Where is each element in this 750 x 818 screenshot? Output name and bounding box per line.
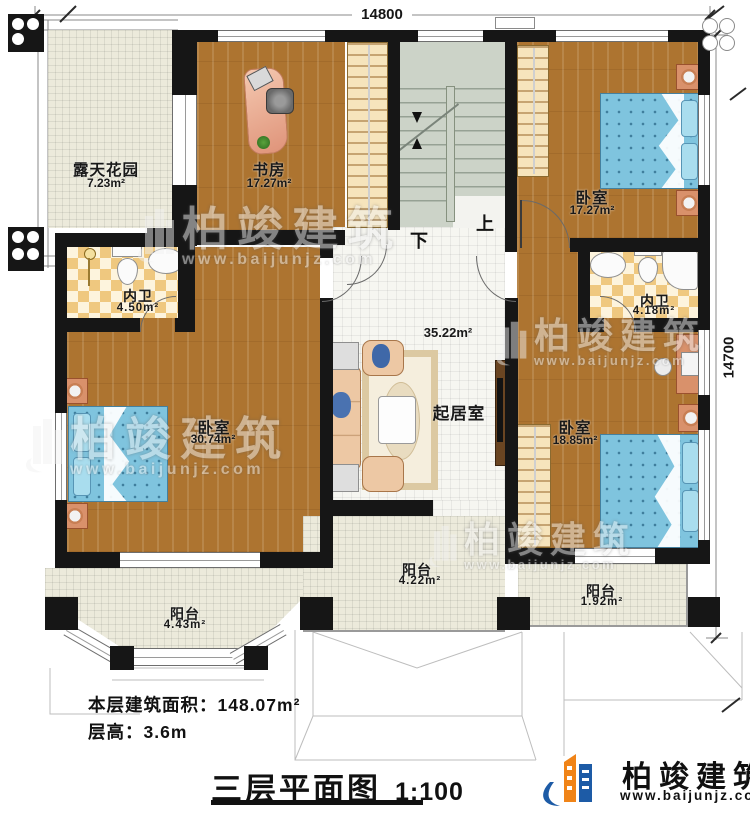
floor-height-label: 层高： (88, 722, 144, 742)
brand-logo (536, 750, 616, 808)
wall-segment (172, 30, 197, 95)
wall-segment (55, 552, 120, 568)
stair-arrow-down (412, 112, 422, 123)
column-circle (12, 248, 24, 260)
plant-icon (257, 136, 270, 149)
room-area-garden: 7.23m² (46, 176, 166, 190)
column-circle (12, 231, 24, 243)
window (55, 413, 67, 500)
wardrobe-bedroom-topright (517, 45, 549, 177)
window (698, 430, 710, 540)
shower-hose-icon (88, 258, 90, 286)
title-underline (211, 800, 423, 805)
shower-handle-icon (84, 248, 96, 260)
column-circle-outline (702, 18, 718, 34)
wall-segment (320, 298, 333, 552)
floor-plan-canvas: 柏竣建筑 www.baijunjz.com 柏竣建筑 www.baijunjz.… (0, 0, 750, 818)
column-circle-outline (719, 18, 735, 34)
wall-segment (570, 238, 710, 252)
armchair (362, 456, 404, 492)
column-circle (27, 231, 39, 243)
wall-segment (260, 552, 333, 568)
window (120, 552, 260, 568)
wall-segment (333, 500, 433, 516)
balcony-column (300, 597, 333, 630)
wall-segment (175, 318, 195, 332)
wall-segment (483, 30, 556, 42)
balcony-column (45, 597, 78, 630)
column-circle (12, 18, 24, 30)
window (575, 548, 655, 564)
office-chair-icon (266, 88, 294, 114)
living-room-door-gap-floor (433, 500, 505, 516)
wall-segment (655, 548, 710, 564)
wall-segment (505, 30, 517, 252)
pillow (681, 143, 698, 180)
wall-segment (698, 395, 710, 430)
room-label-living: 起居室 (399, 400, 519, 424)
brand-website: www.baijunjz.com (620, 788, 750, 803)
dresser-mirror (681, 352, 699, 376)
room-area-bedroom-left: 30.74m² (153, 432, 273, 446)
floor-area-info: 本层建筑面积：148.07m² (88, 692, 300, 717)
sink-icon (590, 252, 626, 278)
room-area-balcony-right: 1.92m² (542, 596, 662, 608)
room-area-balcony-center: 4.22m² (360, 575, 480, 587)
wall-segment (325, 30, 418, 42)
bay-corner-block (244, 646, 268, 670)
window (698, 95, 710, 185)
stool-icon (654, 358, 672, 376)
column-circle (27, 248, 39, 260)
room-area-living: 35.22m² (388, 325, 508, 340)
column-circle (27, 18, 39, 30)
window (698, 330, 710, 395)
room-area-bedroom-right: 18.85m² (515, 433, 635, 447)
pillow (681, 100, 698, 137)
window (218, 30, 325, 42)
floor-height-info: 层高：3.6m (88, 719, 187, 744)
window (418, 30, 483, 42)
pillow (73, 413, 91, 452)
floor-area-value: 148.07m² (218, 695, 301, 715)
balcony-column (497, 597, 530, 630)
room-area-bathroom-left: 4.50m² (78, 302, 198, 314)
wall-segment (172, 185, 197, 232)
pillow (73, 457, 91, 496)
door-leaf (520, 200, 522, 248)
stair-label-down: 下 (410, 227, 428, 253)
room-area-study: 17.27m² (209, 176, 329, 190)
room-area-bedroom-topright: 17.27m² (532, 203, 652, 217)
wardrobe-study (347, 42, 388, 228)
room-area-bathroom-right: 4.18m² (594, 305, 714, 317)
room-area-balcony-bay: 4.43m² (125, 619, 245, 631)
wall-segment (505, 548, 575, 564)
balcony-column (688, 597, 720, 627)
wall-segment (55, 318, 140, 332)
pillow (682, 442, 699, 484)
stair-arrow-up (412, 138, 422, 149)
wall-segment (388, 30, 400, 230)
bay-corner-block (110, 646, 134, 670)
wall-segment (55, 233, 195, 247)
column-circle-outline (702, 35, 718, 51)
floor-height-value: 3.6m (144, 722, 188, 742)
person-figure (372, 344, 390, 368)
person-figure (331, 392, 351, 418)
column-circle-outline (719, 35, 735, 51)
window-symbol (495, 17, 535, 29)
pillow (682, 490, 699, 532)
window (556, 30, 668, 42)
brand-logo-icon (536, 750, 616, 808)
wall-segment (197, 230, 345, 245)
toilet-tank (112, 246, 142, 257)
stair-label-up: 上 (476, 210, 494, 236)
garden-study-door-gap (172, 95, 197, 185)
garden-floor (48, 30, 172, 228)
bay-window-front (134, 648, 244, 666)
side-table (331, 464, 359, 492)
dimension-width: 14800 (352, 6, 412, 23)
column-circle (12, 33, 24, 45)
side-table (331, 342, 359, 370)
dimension-height: 14700 (721, 326, 738, 390)
floor-area-label: 本层建筑面积： (88, 695, 218, 715)
